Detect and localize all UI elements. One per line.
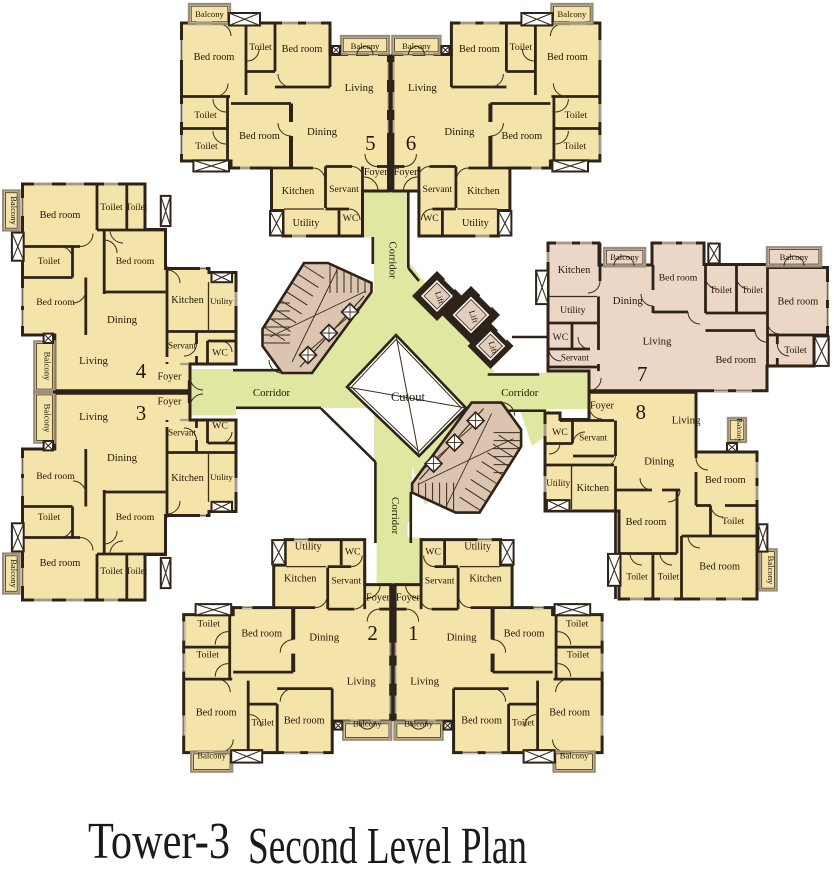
- svg-text:WC: WC: [423, 213, 439, 224]
- svg-text:Bed room: Bed room: [626, 517, 667, 528]
- svg-text:Toilet: Toilet: [100, 202, 123, 213]
- svg-text:Bed room: Bed room: [504, 629, 545, 640]
- svg-text:WC: WC: [553, 332, 569, 343]
- svg-text:Servant: Servant: [329, 184, 359, 195]
- svg-text:Bed room: Bed room: [549, 708, 590, 719]
- svg-text:Servant: Servant: [331, 576, 361, 587]
- svg-text:Dining: Dining: [309, 632, 340, 644]
- svg-text:5: 5: [365, 131, 376, 155]
- svg-text:Bed room: Bed room: [459, 44, 500, 55]
- svg-text:Balcony: Balcony: [353, 719, 382, 729]
- svg-text:Toilet: Toilet: [195, 141, 218, 152]
- svg-text:Balcony: Balcony: [610, 252, 639, 262]
- svg-text:Toilet: Toilet: [510, 42, 533, 53]
- svg-text:WC: WC: [345, 547, 361, 558]
- svg-text:Corridor: Corridor: [389, 497, 401, 535]
- svg-text:Kitchen: Kitchen: [171, 473, 203, 484]
- svg-text:Toilet: Toilet: [38, 256, 61, 267]
- svg-text:Servant: Servant: [168, 428, 196, 438]
- svg-text:Foyer: Foyer: [366, 593, 391, 604]
- svg-text:Balcony: Balcony: [9, 196, 19, 225]
- svg-text:Kitchen: Kitchen: [282, 186, 314, 197]
- svg-text:8: 8: [636, 400, 647, 424]
- svg-text:WC: WC: [343, 213, 359, 224]
- svg-text:Bed room: Bed room: [239, 131, 280, 142]
- svg-text:Toilet: Toilet: [251, 718, 274, 729]
- svg-text:Utility: Utility: [210, 472, 233, 482]
- svg-text:2: 2: [367, 621, 378, 645]
- svg-text:1: 1: [408, 621, 419, 645]
- svg-text:Bed room: Bed room: [461, 716, 502, 727]
- svg-text:Foyer: Foyer: [396, 593, 421, 604]
- svg-text:Toilet: Toilet: [710, 285, 733, 296]
- svg-text:Utility: Utility: [464, 542, 492, 553]
- svg-text:Kitchen: Kitchen: [467, 186, 499, 197]
- svg-text:3: 3: [136, 401, 147, 425]
- svg-text:Living: Living: [408, 82, 437, 94]
- svg-text:Balcony: Balcony: [195, 9, 224, 19]
- svg-text:Servant: Servant: [168, 341, 196, 351]
- svg-text:Toilet: Toilet: [567, 650, 590, 661]
- svg-text:Toilet: Toilet: [784, 345, 807, 356]
- svg-text:Cutout: Cutout: [391, 390, 426, 404]
- svg-text:WC: WC: [212, 348, 228, 359]
- svg-text:Toilet: Toilet: [197, 619, 220, 630]
- svg-text:Balcony: Balcony: [780, 252, 809, 262]
- svg-text:Bed room: Bed room: [284, 716, 325, 727]
- svg-text:Balcony: Balcony: [402, 41, 431, 51]
- svg-text:Dining: Dining: [107, 452, 138, 464]
- svg-text:Foyer: Foyer: [394, 167, 419, 178]
- svg-text:Servant: Servant: [561, 353, 589, 363]
- svg-text:Balcony: Balcony: [9, 559, 19, 588]
- svg-text:Bed room: Bed room: [699, 562, 740, 573]
- svg-text:Toilet: Toilet: [566, 619, 589, 630]
- svg-text:Toilet: Toilet: [565, 110, 588, 121]
- svg-text:Living: Living: [79, 411, 108, 423]
- svg-text:Bed room: Bed room: [40, 558, 81, 569]
- svg-text:Bed room: Bed room: [36, 471, 75, 482]
- svg-text:Toilet: Toilet: [249, 42, 272, 53]
- svg-text:Corridor: Corridor: [387, 241, 399, 279]
- svg-text:Living: Living: [345, 82, 374, 94]
- svg-text:Toilet: Toilet: [126, 566, 148, 576]
- svg-text:Bed room: Bed room: [659, 273, 698, 284]
- svg-text:Kitchen: Kitchen: [171, 295, 203, 306]
- svg-text:6: 6: [406, 131, 417, 155]
- svg-text:Balcony: Balcony: [43, 404, 53, 433]
- svg-text:Living: Living: [643, 336, 672, 348]
- svg-text:Balcony: Balcony: [766, 556, 776, 585]
- svg-text:Toilet: Toilet: [194, 110, 217, 121]
- svg-text:Bed room: Bed room: [502, 131, 543, 142]
- svg-text:Toilet: Toilet: [512, 718, 535, 729]
- svg-text:Living: Living: [672, 415, 701, 427]
- svg-text:Foyer: Foyer: [590, 401, 615, 412]
- svg-text:Toilet: Toilet: [658, 572, 680, 582]
- svg-text:Toilet: Toilet: [196, 650, 219, 661]
- svg-text:7: 7: [637, 362, 648, 386]
- svg-text:Tower-3: Tower-3: [88, 813, 230, 870]
- svg-text:Balcony: Balcony: [351, 41, 380, 51]
- svg-text:Bed room: Bed room: [778, 297, 819, 308]
- svg-text:Foyer: Foyer: [364, 167, 389, 178]
- svg-text:Toilet: Toilet: [38, 512, 61, 523]
- svg-text:Living: Living: [347, 676, 376, 688]
- svg-text:Bed room: Bed room: [194, 52, 235, 63]
- svg-text:Foyer: Foyer: [157, 372, 182, 383]
- svg-text:Living: Living: [410, 676, 439, 688]
- svg-text:Dining: Dining: [613, 295, 644, 307]
- svg-text:Toilet: Toilet: [126, 202, 148, 212]
- svg-text:Balcony: Balcony: [560, 751, 589, 761]
- svg-text:Bed room: Bed room: [241, 629, 282, 640]
- svg-text:Utility: Utility: [546, 478, 570, 488]
- svg-text:4: 4: [136, 359, 147, 383]
- svg-text:Dining: Dining: [107, 314, 138, 326]
- svg-text:Bed room: Bed room: [40, 210, 81, 221]
- svg-text:Toilet: Toilet: [742, 285, 764, 295]
- svg-text:Bed room: Bed room: [282, 44, 323, 55]
- svg-text:Utility: Utility: [210, 296, 233, 306]
- svg-text:Bed room: Bed room: [196, 708, 237, 719]
- svg-text:Bed room: Bed room: [116, 512, 155, 523]
- svg-text:Utility: Utility: [462, 218, 490, 229]
- svg-text:Foyer: Foyer: [157, 397, 182, 408]
- svg-text:Servant: Servant: [579, 433, 607, 443]
- svg-text:Balcony: Balcony: [43, 352, 53, 381]
- svg-text:Kitchen: Kitchen: [577, 483, 609, 494]
- svg-text:Dining: Dining: [447, 632, 478, 644]
- svg-text:Utility: Utility: [295, 542, 323, 553]
- svg-text:Toilet: Toilet: [564, 141, 587, 152]
- svg-text:Servant: Servant: [423, 184, 453, 195]
- svg-text:Balcony: Balcony: [197, 751, 226, 761]
- svg-text:Kitchen: Kitchen: [284, 574, 316, 585]
- svg-text:Utility: Utility: [560, 305, 586, 316]
- svg-text:Bed room: Bed room: [715, 355, 756, 366]
- svg-text:Kitchen: Kitchen: [469, 574, 501, 585]
- svg-text:Bed room: Bed room: [116, 256, 155, 267]
- svg-text:Dining: Dining: [644, 456, 675, 468]
- svg-text:Corridor: Corridor: [501, 387, 539, 399]
- svg-text:Bed room: Bed room: [705, 475, 746, 486]
- svg-text:Balcony: Balcony: [404, 719, 433, 729]
- svg-text:Second Level Plan: Second Level Plan: [248, 818, 527, 870]
- svg-text:Kitchen: Kitchen: [558, 265, 590, 276]
- svg-text:Corridor: Corridor: [253, 387, 291, 399]
- svg-text:Dining: Dining: [444, 126, 475, 138]
- svg-text:Bed room: Bed room: [36, 297, 75, 308]
- svg-text:Living: Living: [79, 355, 108, 367]
- svg-text:WC: WC: [425, 547, 441, 558]
- svg-text:Servant: Servant: [425, 576, 455, 587]
- svg-text:Toilet: Toilet: [100, 566, 123, 577]
- svg-text:Dining: Dining: [307, 126, 338, 138]
- svg-text:WC: WC: [552, 427, 568, 438]
- svg-text:Balcony: Balcony: [558, 9, 587, 19]
- svg-text:Toilet: Toilet: [722, 516, 745, 527]
- svg-text:Utility: Utility: [293, 218, 321, 229]
- svg-text:Balcony: Balcony: [735, 418, 743, 442]
- svg-text:Toilet: Toilet: [626, 572, 648, 582]
- svg-text:Bed room: Bed room: [547, 52, 588, 63]
- svg-text:WC: WC: [212, 421, 228, 432]
